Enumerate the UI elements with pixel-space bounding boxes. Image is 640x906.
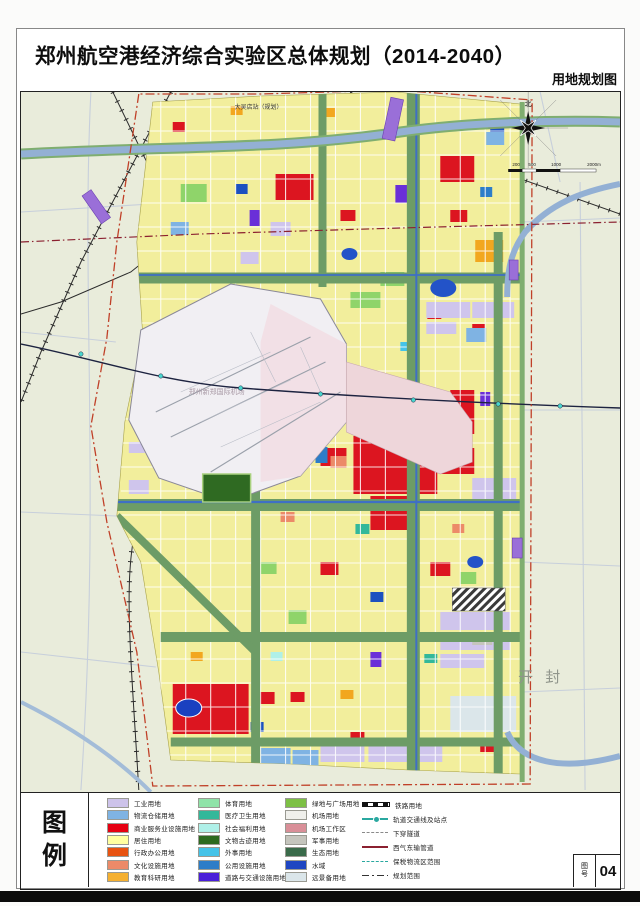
legend-item: 轨道交通线及站点: [362, 814, 447, 823]
legend-item: 外事用地: [198, 848, 286, 857]
legend-panel: 图 例 工业用地 物流仓储用地 商业服务业设施用地 居住用地 行政办公用地 文化…: [21, 793, 620, 887]
hatched-zone: [452, 588, 505, 611]
roundabout-lake: [176, 699, 202, 717]
color-swatch: [285, 823, 307, 833]
legend-item: 教育科研用地: [107, 873, 195, 882]
bonded-zone-symbol: [362, 861, 388, 862]
title-bar: 郑州航空港经济综合实验区总体规划（2014-2040） 用地规划图: [17, 29, 624, 91]
color-swatch: [285, 798, 307, 808]
map-type-label: 用地规划图: [552, 69, 617, 88]
color-swatch: [107, 823, 129, 833]
legend-item: 下穿隧道: [362, 828, 447, 837]
svg-text:1000: 1000: [551, 162, 561, 167]
legend-item: 体育用地: [198, 798, 286, 807]
station-label: 大吴店站（规划）: [235, 103, 283, 111]
legend-item: 道路与交通设施用地: [198, 873, 286, 882]
legend-item: 西气东输管道: [362, 843, 447, 852]
sheet-number-label: 图 号: [574, 855, 596, 887]
legend-title: 图 例: [21, 793, 89, 887]
color-swatch: [285, 835, 307, 845]
color-swatch: [107, 860, 129, 870]
legend-item: 机场用地: [285, 811, 360, 820]
sheet-number-value: 04: [596, 855, 620, 887]
sheet-number-block: 图 号 04: [573, 854, 620, 887]
legend-item: 绿地与广场用地: [285, 798, 360, 807]
color-swatch: [107, 847, 129, 857]
page-title: 郑州航空港经济综合实验区总体规划（2014-2040）: [35, 39, 516, 69]
color-swatch: [198, 860, 220, 870]
legend-item: 文化设施用地: [107, 860, 195, 869]
plan-body: 郑州新郑国际机场: [20, 91, 621, 890]
legend-item: 医疗卫生用地: [198, 811, 286, 820]
color-swatch: [198, 823, 220, 833]
color-swatch: [107, 872, 129, 882]
plan-sheet: 郑州航空港经济综合实验区总体规划（2014-2040） 用地规划图: [16, 28, 625, 889]
legend-item: 居住用地: [107, 836, 195, 845]
compass-north-label: 北: [525, 100, 532, 108]
legend-items: 工业用地 物流仓储用地 商业服务业设施用地 居住用地 行政办公用地 文化设施用地…: [89, 793, 620, 887]
legend-item: 文物古迹用地: [198, 836, 286, 845]
color-swatch: [198, 835, 220, 845]
kaifeng-label: 开 封: [518, 669, 564, 686]
legend-column-3: 绿地与广场用地 机场用地 机场工作区 军事用地 生态用地 水域 远景备用地: [285, 795, 360, 885]
legend-item: 商业服务业设施用地: [107, 823, 195, 832]
tunnel-symbol: [362, 832, 388, 833]
legend-item: 保税物流区范围: [362, 857, 447, 866]
color-swatch: [198, 798, 220, 808]
pipeline-symbol: [362, 846, 388, 848]
color-swatch: [285, 847, 307, 857]
rail-symbol: [362, 802, 390, 807]
color-swatch: [198, 872, 220, 882]
legend-column-lines: 铁路用地 轨道交通线及站点 下穿隧道 西气东输管道 保税物流区范围 规划范围: [362, 795, 447, 885]
svg-text:500: 500: [528, 162, 536, 167]
color-swatch: [107, 798, 129, 808]
color-swatch: [107, 835, 129, 845]
legend-item: 社会福利用地: [198, 823, 286, 832]
color-swatch: [198, 810, 220, 820]
landuse-map[interactable]: 郑州新郑国际机场: [21, 92, 620, 792]
legend-title-char-2: 例: [42, 844, 67, 869]
map-canvas[interactable]: 郑州新郑国际机场: [21, 92, 620, 793]
metro-symbol: [362, 818, 388, 821]
legend-item: 物流仓储用地: [107, 811, 195, 820]
boundary-symbol: [362, 875, 388, 877]
color-swatch: [285, 872, 307, 882]
color-swatch: [198, 847, 220, 857]
color-swatch: [285, 810, 307, 820]
legend-item: 工业用地: [107, 798, 195, 807]
color-swatch: [107, 810, 129, 820]
legend-item: 铁路用地: [362, 800, 447, 809]
legend-item: 远景备用地: [285, 873, 360, 882]
legend-item: 规划范围: [362, 871, 447, 880]
legend-item: 水域: [285, 860, 360, 869]
legend-item: 机场工作区: [285, 823, 360, 832]
legend-item: 公用设施用地: [198, 860, 286, 869]
bottom-rule: [0, 891, 640, 902]
svg-text:200: 200: [512, 162, 520, 167]
legend-title-char-1: 图: [42, 811, 67, 836]
legend-column-2: 体育用地 医疗卫生用地 社会福利用地 文物古迹用地 外事用地 公用设施用地 道路…: [198, 795, 286, 885]
legend-item: 军事用地: [285, 836, 360, 845]
expo-park: [203, 474, 251, 502]
legend-item: 生态用地: [285, 848, 360, 857]
legend-item: 行政办公用地: [107, 848, 195, 857]
svg-text:2000m: 2000m: [587, 162, 601, 167]
color-swatch: [285, 860, 307, 870]
legend-column-1: 工业用地 物流仓储用地 商业服务业设施用地 居住用地 行政办公用地 文化设施用地…: [107, 795, 195, 885]
